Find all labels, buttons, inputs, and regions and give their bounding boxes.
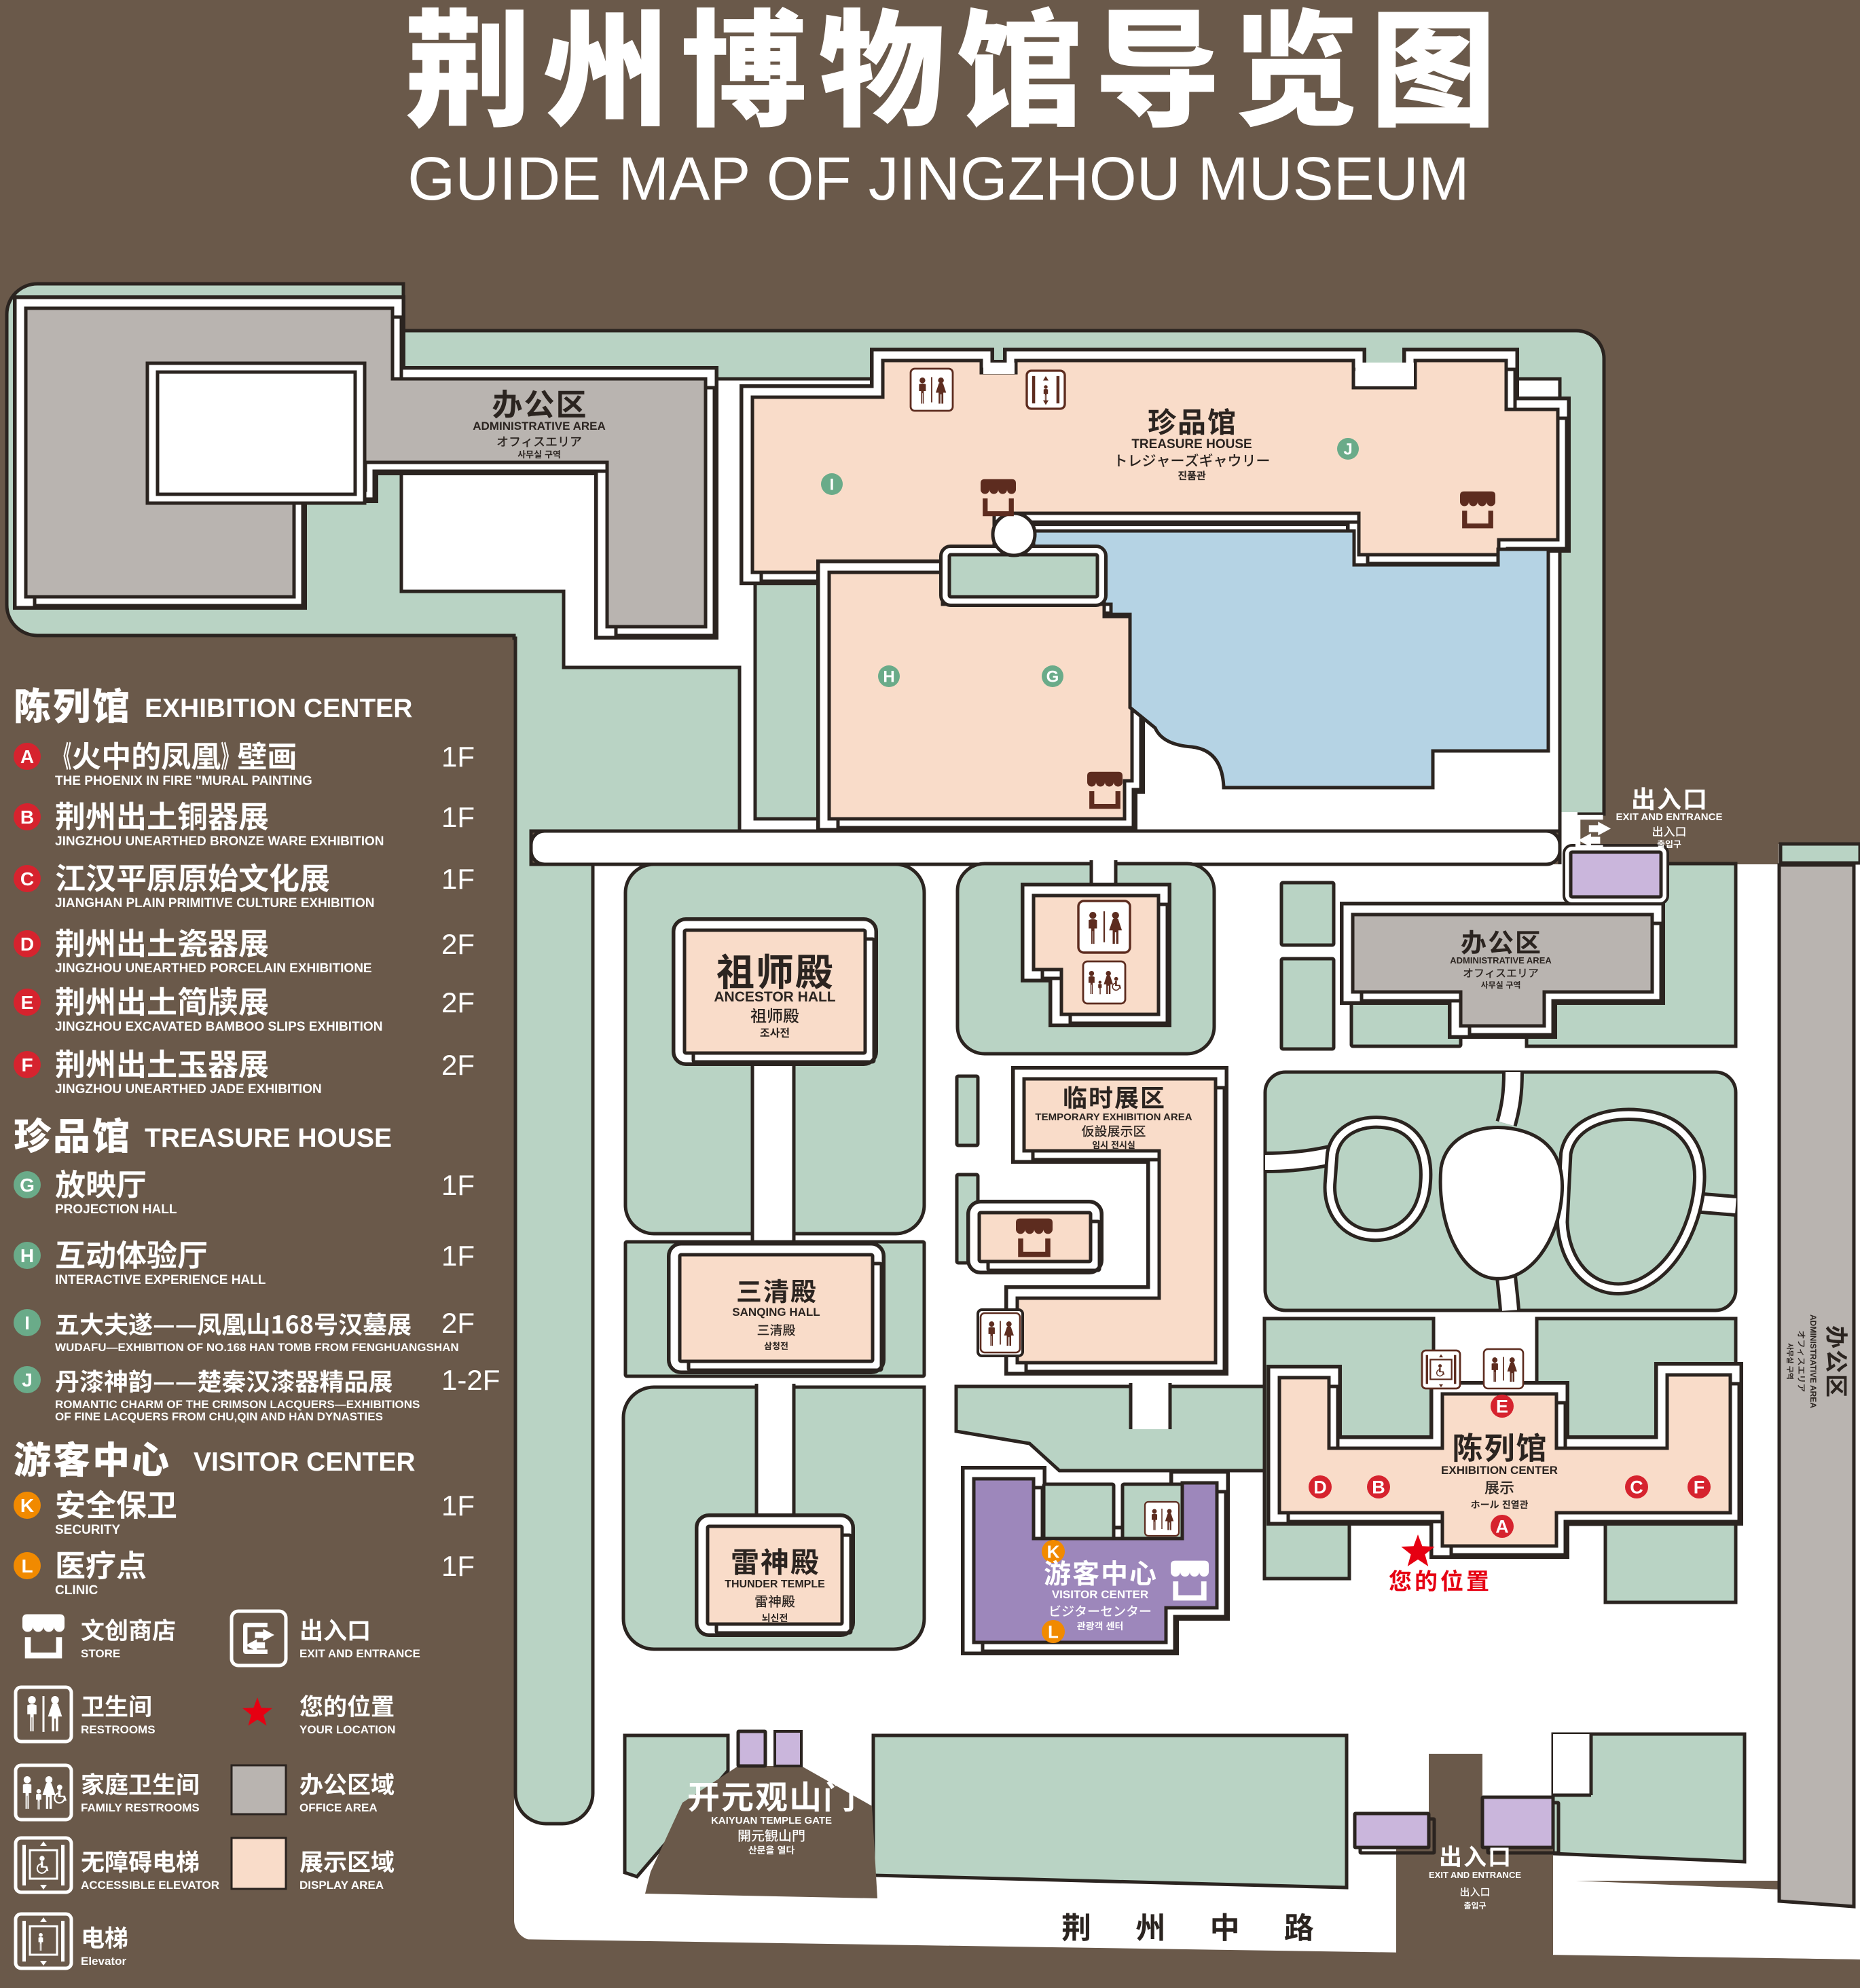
svg-text:G: G (1046, 668, 1059, 686)
svg-text:2F: 2F (441, 928, 475, 960)
svg-text:GUIDE MAP OF JINGZHOU MUSEUM: GUIDE MAP OF JINGZHOU MUSEUM (407, 145, 1469, 213)
svg-text:H: H (883, 668, 894, 686)
svg-text:SECURITY: SECURITY (55, 1523, 120, 1537)
svg-text:K: K (20, 1495, 34, 1516)
svg-text:A: A (1495, 1517, 1509, 1537)
svg-text:VISITOR CENTER: VISITOR CENTER (1052, 1588, 1148, 1601)
svg-text:2F: 2F (441, 1049, 475, 1081)
svg-text:THE PHOENIX IN FIRE "MURAL PAI: THE PHOENIX IN FIRE "MURAL PAINTING (55, 774, 312, 788)
svg-text:G: G (20, 1175, 35, 1196)
svg-text:JINGZHOU EXCAVATED BAMBOO SLIP: JINGZHOU EXCAVATED BAMBOO SLIPS EXHIBITI… (55, 1020, 382, 1034)
svg-text:J: J (22, 1369, 33, 1391)
svg-text:1F: 1F (441, 801, 475, 833)
svg-text:RESTROOMS: RESTROOMS (81, 1723, 156, 1736)
svg-text:E: E (1496, 1397, 1508, 1417)
svg-text:1-2F: 1-2F (441, 1364, 500, 1396)
svg-text:2F: 2F (441, 1307, 475, 1339)
svg-text:SANQING HALL: SANQING HALL (732, 1306, 820, 1319)
svg-text:STORE: STORE (81, 1647, 120, 1660)
svg-text:OF FINE LACQUERS FROM CHU,QIN: OF FINE LACQUERS FROM CHU,QIN AND HAN DY… (55, 1410, 383, 1423)
svg-text:KAIYUAN TEMPLE GATE: KAIYUAN TEMPLE GATE (711, 1815, 832, 1826)
svg-text:EXIT AND ENTRANCE: EXIT AND ENTRANCE (299, 1647, 420, 1660)
svg-text:ADMINISTRATIVE AREA: ADMINISTRATIVE AREA (1808, 1314, 1818, 1408)
svg-text:J: J (1343, 441, 1352, 459)
svg-text:JINGZHOU UNEARTHED JADE EXHIBI: JINGZHOU UNEARTHED JADE EXHIBITION (55, 1082, 322, 1097)
svg-text:JIANGHAN PLAIN PRIMITIVE CULTU: JIANGHAN PLAIN PRIMITIVE CULTURE EXHIBIT… (55, 896, 374, 910)
svg-text:PROJECTION HALL: PROJECTION HALL (55, 1202, 177, 1217)
svg-text:C: C (1630, 1477, 1643, 1498)
svg-text:L: L (21, 1556, 33, 1577)
svg-text:L: L (1048, 1621, 1059, 1642)
svg-text:TEMPORARY EXHIBITION AREA: TEMPORARY EXHIBITION AREA (1035, 1111, 1192, 1123)
svg-text:K: K (1047, 1541, 1060, 1562)
svg-text:ANCESTOR HALL: ANCESTOR HALL (714, 989, 835, 1005)
svg-text:B: B (20, 807, 34, 828)
svg-text:VISITOR CENTER: VISITOR CENTER (194, 1448, 416, 1477)
svg-text:F: F (1694, 1477, 1705, 1498)
svg-text:1F: 1F (441, 863, 475, 895)
svg-text:WUDAFU—EXHIBITION OF NO.168 HA: WUDAFU—EXHIBITION OF NO.168 HAN TOMB FRO… (55, 1341, 459, 1354)
svg-text:H: H (20, 1245, 34, 1266)
svg-text:D: D (1313, 1477, 1327, 1498)
svg-text:B: B (1372, 1477, 1385, 1498)
svg-text:1F: 1F (441, 1550, 475, 1582)
svg-text:D: D (20, 934, 34, 955)
svg-text:TREASURE HOUSE: TREASURE HOUSE (145, 1124, 392, 1153)
svg-text:1F: 1F (441, 1490, 475, 1522)
svg-text:OFFICE AREA: OFFICE AREA (299, 1801, 378, 1814)
svg-text:DISPLAY AREA: DISPLAY AREA (299, 1879, 384, 1892)
svg-text:EXIT AND ENTRANCE: EXIT AND ENTRANCE (1429, 1870, 1521, 1880)
svg-text:EXHIBITION CENTER: EXHIBITION CENTER (145, 694, 412, 723)
svg-text:1F: 1F (441, 1240, 475, 1272)
svg-text:C: C (20, 868, 34, 889)
svg-text:INTERACTIVE EXPERIENCE HALL: INTERACTIVE EXPERIENCE HALL (55, 1273, 266, 1287)
svg-text:ADMINISTRATIVE AREA: ADMINISTRATIVE AREA (473, 420, 606, 432)
svg-text:EXHIBITION CENTER: EXHIBITION CENTER (1441, 1464, 1558, 1477)
svg-text:JINGZHOU UNEARTHED PORCELAIN E: JINGZHOU UNEARTHED PORCELAIN EXHIBITIONE (55, 961, 372, 976)
svg-text:JINGZHOU UNEARTHED BRONZE WARE: JINGZHOU UNEARTHED BRONZE WARE EXHIBITIO… (55, 834, 384, 849)
svg-text:1F: 1F (441, 741, 475, 773)
svg-text:F: F (21, 1054, 33, 1075)
svg-text:ROMANTIC CHARM OF THE CRIMSON: ROMANTIC CHARM OF THE CRIMSON LACQUERS—E… (55, 1398, 420, 1411)
svg-text:CLINIC: CLINIC (55, 1583, 98, 1598)
svg-text:TREASURE HOUSE: TREASURE HOUSE (1131, 437, 1252, 452)
svg-text:I: I (830, 476, 835, 494)
svg-text:2F: 2F (441, 987, 475, 1018)
svg-text:E: E (21, 992, 34, 1013)
svg-text:1F: 1F (441, 1169, 475, 1201)
svg-text:THUNDER TEMPLE: THUNDER TEMPLE (725, 1579, 825, 1590)
svg-text:EXIT AND ENTRANCE: EXIT AND ENTRANCE (1616, 811, 1723, 823)
svg-text:FAMILY RESTROOMS: FAMILY RESTROOMS (81, 1801, 200, 1814)
svg-text:Elevator: Elevator (81, 1955, 126, 1968)
svg-text:YOUR LOCATION: YOUR LOCATION (299, 1723, 395, 1736)
svg-text:I: I (24, 1312, 30, 1333)
svg-text:A: A (20, 746, 34, 767)
svg-text:ACCESSIBLE ELEVATOR: ACCESSIBLE ELEVATOR (81, 1879, 219, 1892)
svg-text:ADMINISTRATIVE AREA: ADMINISTRATIVE AREA (1450, 955, 1552, 965)
